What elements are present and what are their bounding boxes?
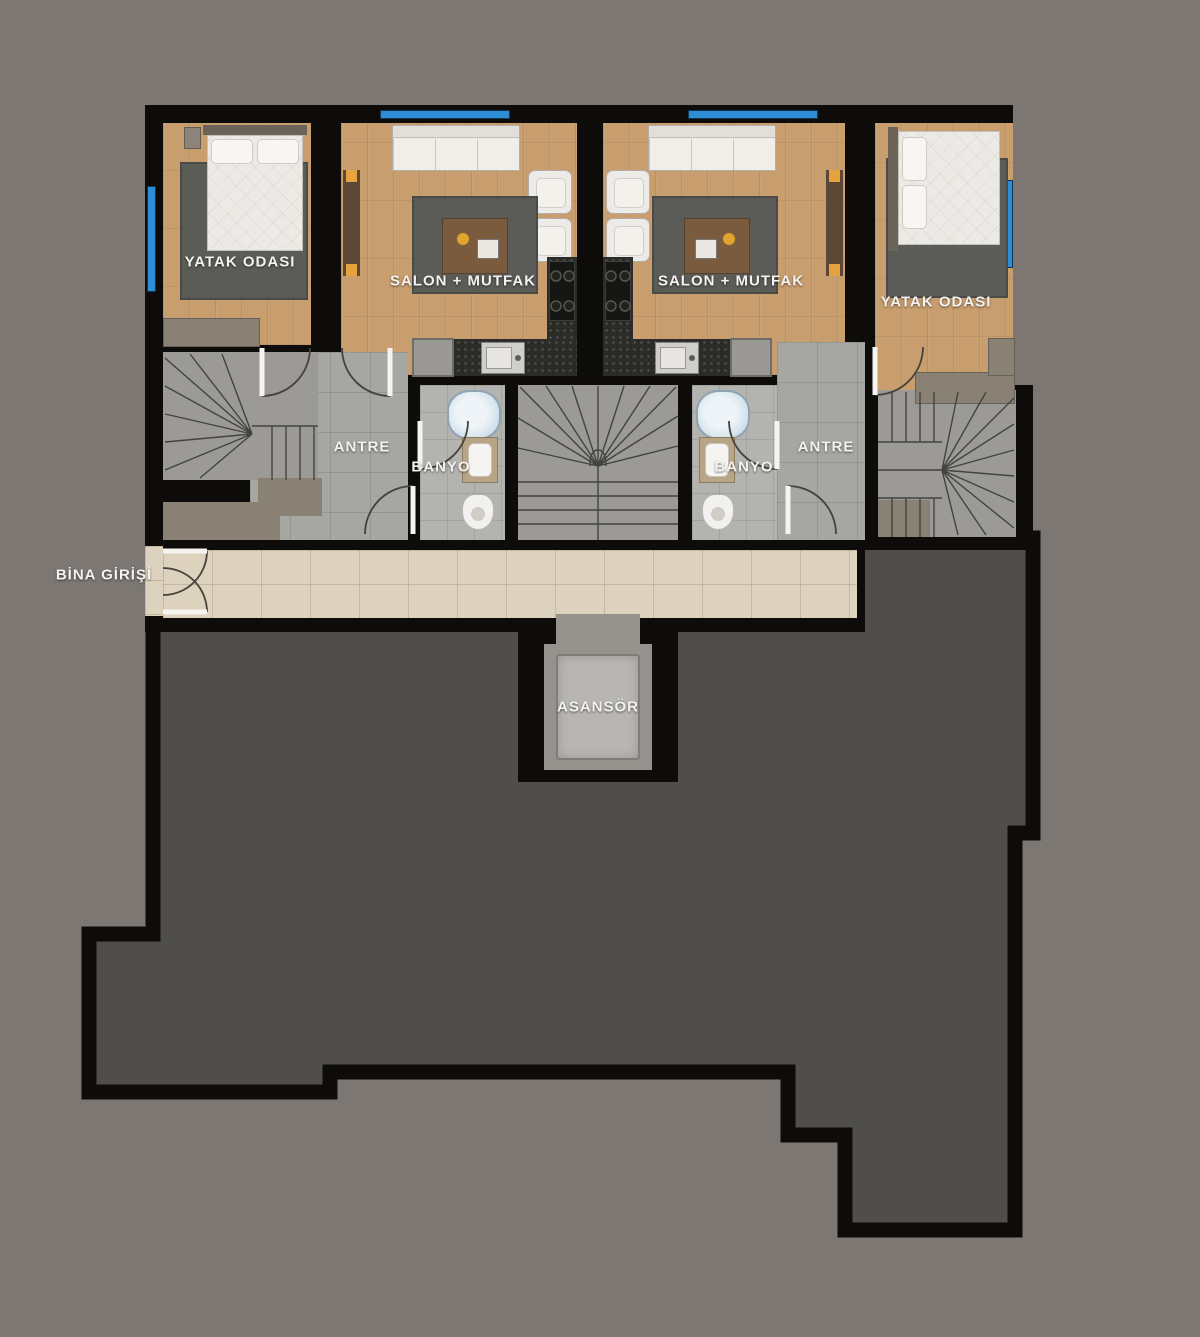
armchair xyxy=(606,218,650,262)
stove xyxy=(605,261,631,321)
nightstand xyxy=(184,127,201,149)
room-label-salon-right: SALON + MUTFAK xyxy=(658,273,804,290)
kitchen-sink xyxy=(655,342,699,374)
fridge xyxy=(412,338,454,377)
floor-plan: YATAK ODASI SALON + MUTFAK SALON + MUTFA… xyxy=(0,0,1200,1337)
tv-unit xyxy=(826,170,843,276)
toilet xyxy=(702,494,734,530)
room-label-bedroom-right: YATAK ODASI xyxy=(881,294,992,311)
window-left xyxy=(147,186,156,292)
stairs-right-landing xyxy=(878,500,930,537)
room-label-antre-left: ANTRE xyxy=(334,439,391,456)
stairs-central-floor xyxy=(518,385,678,540)
double-bed xyxy=(888,127,1002,251)
label-elevator: ASANSÖR xyxy=(557,699,639,716)
wardrobe xyxy=(988,338,1015,376)
toilet xyxy=(462,494,494,530)
stove xyxy=(549,261,575,321)
fridge xyxy=(730,338,772,377)
elevator-stub xyxy=(556,614,640,648)
double-bed xyxy=(203,125,307,253)
sofa xyxy=(392,125,520,171)
coffee-table xyxy=(442,218,508,274)
kitchen-sink xyxy=(481,342,525,374)
room-label-banyo-right: BANYO xyxy=(714,459,773,476)
armchair xyxy=(606,170,650,214)
room-label-banyo-left: BANYO xyxy=(411,459,470,476)
label-building-entrance: BİNA GİRİŞİ xyxy=(56,567,152,584)
tv-unit xyxy=(343,170,360,276)
wall-notch-top-right xyxy=(1013,105,1033,385)
stairs-left-run xyxy=(258,425,318,480)
corridor-floor xyxy=(163,550,857,618)
room-label-bedroom-left: YATAK ODASI xyxy=(185,254,296,271)
sofa xyxy=(648,125,776,171)
shower xyxy=(696,390,750,440)
coffee-table xyxy=(684,218,750,274)
window-top-left xyxy=(380,110,510,119)
window-top-right xyxy=(688,110,818,119)
shower xyxy=(447,390,501,440)
stairs-left-lower-strip xyxy=(163,502,280,540)
room-label-antre-right: ANTRE xyxy=(798,439,855,456)
room-label-salon-left: SALON + MUTFAK xyxy=(390,273,536,290)
wardrobe xyxy=(915,372,1015,404)
wardrobe xyxy=(163,318,260,347)
